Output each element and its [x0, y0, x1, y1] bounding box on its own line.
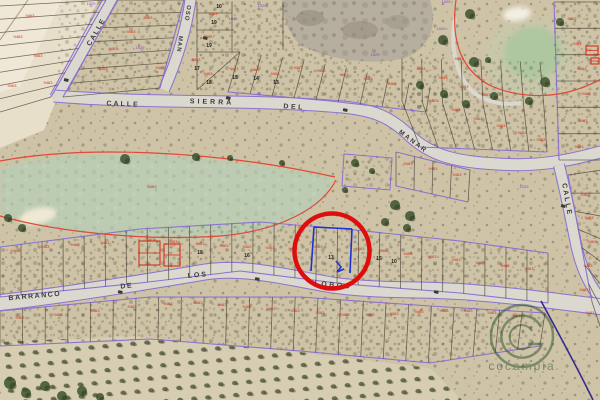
tree-shadow — [355, 163, 360, 168]
tree-shadow — [45, 386, 51, 392]
tree-shadow — [22, 228, 27, 233]
parcel-code-purple: 1029 — [520, 184, 530, 189]
parcel-code-red: 9463 — [464, 308, 474, 313]
parcel-code-red: 9463 — [192, 57, 202, 62]
parcel-code-red: 9463 — [26, 13, 36, 18]
parcel-code-red: 9463 — [453, 172, 463, 177]
parcel-code-purple: 1029 — [87, 1, 97, 6]
parcel-code-red: 9463 — [575, 144, 585, 149]
parcel-code-red: 9463 — [169, 239, 179, 244]
watermark-text: cocampia — [488, 359, 555, 373]
parcel-code-red: 9463 — [204, 34, 214, 39]
parcel-code-red: 9463 — [388, 81, 398, 86]
parcel-code-red: 9463 — [404, 251, 414, 256]
tree-shadow — [230, 158, 234, 162]
tree-shadow — [488, 60, 492, 64]
tree-shadow — [420, 85, 425, 90]
parcel-number: 13 — [273, 80, 279, 86]
cadastral-aerial-map: 9463946394639463946394639463946394639463… — [0, 0, 600, 400]
parcel-code-red: 9463 — [417, 66, 427, 71]
parcel-code-red: 9463 — [488, 310, 498, 315]
parcel-number: 19 — [211, 20, 217, 26]
parcel-code-red: 9463 — [266, 245, 276, 250]
parcel-code-red: 9463 — [501, 263, 511, 268]
parcel-code-red: 9463 — [99, 66, 109, 71]
tree-shadow — [529, 101, 534, 106]
parcel-code-red: 9463 — [579, 118, 589, 123]
parcel-code-purple: 1029 — [371, 52, 381, 57]
parcel-code-red: 9463 — [209, 11, 219, 16]
parcel-code-red: 9463 — [578, 66, 588, 71]
parcel-code-red: 9463 — [54, 312, 64, 317]
tree-shadow — [474, 62, 480, 68]
parcel-code-red: 9463 — [220, 243, 230, 248]
tree-shadow — [466, 104, 471, 109]
tree-shadow — [372, 171, 376, 175]
parcel-code-red: 9463 — [196, 241, 206, 246]
parcel-code-purple: 1029 — [136, 45, 146, 50]
parcel-code-red: 9463 — [291, 308, 301, 313]
parcel-code-red: 9463 — [271, 71, 281, 76]
parcel-code-red: 9463 — [41, 244, 51, 249]
parcel-code-red: 9463 — [91, 308, 101, 313]
parcel-code-red: 9463 — [428, 254, 438, 259]
tree-shadow — [8, 218, 13, 223]
parcel-code-red: 9463 — [340, 72, 350, 77]
parcel-code-red: 9463 — [585, 215, 595, 220]
fenced-parcel — [342, 154, 392, 190]
parcel-code-red: 9463 — [429, 98, 439, 103]
map-canvas[interactable]: 9463946394639463946394639463946394639463… — [0, 0, 600, 400]
parcel-code-red: 9463 — [194, 300, 204, 305]
parcel-code-red: 9463 — [156, 65, 166, 70]
parcel-number: 16 — [244, 253, 250, 259]
parcel-code-red: 9463 — [243, 244, 253, 249]
tree-shadow — [410, 216, 416, 222]
parcel-code-red: 9463 — [218, 302, 228, 307]
parcel-line — [414, 157, 415, 191]
tree-shadow — [560, 22, 565, 27]
parcel-code-red: 9463 — [251, 67, 261, 72]
parcel-code-red: 9463 — [34, 53, 44, 58]
parcel-code-red: 9463 — [366, 312, 376, 317]
tree-shadow — [395, 205, 401, 211]
parcel-code-red: 9463 — [230, 66, 240, 71]
parcel-code-red: 9463 — [109, 46, 119, 51]
parcel-code-red: 9463 — [476, 260, 486, 265]
tree-shadow — [196, 157, 201, 162]
tree-shadow — [82, 391, 88, 397]
parcel-number: 18 — [206, 80, 212, 86]
parcel-code-red: 9463 — [267, 306, 277, 311]
parcel-code-red: 9463 — [243, 304, 253, 309]
parcel-code-red: 9463 — [127, 29, 137, 34]
parcel-code-red: 9463 — [482, 92, 492, 97]
parcel-code-red: 9463 — [204, 71, 214, 76]
parcel-code-red: 9463 — [404, 161, 414, 166]
tree-shadow — [443, 40, 449, 46]
parcel-code-purple: 1029 — [442, 0, 452, 4]
tree-shadow — [470, 14, 476, 20]
parcel-code-red: 9463 — [14, 34, 24, 39]
parcel-number: 19 — [206, 43, 212, 49]
parcel-code-red: 9463 — [580, 287, 590, 292]
parcel-code-red: 9463 — [415, 309, 425, 314]
street-label: CALLE — [106, 100, 140, 108]
parcel-number: 15 — [376, 256, 382, 262]
tree-shadow — [125, 159, 131, 165]
parcel-code-red: 9463 — [164, 301, 174, 306]
parcel-code-red: 9463 — [316, 310, 326, 315]
parcel-code-red: 9463 — [537, 137, 547, 142]
parcel-code-red: 9463 — [71, 242, 81, 247]
parcel-code-red: 9463 — [146, 237, 156, 242]
parcel-code-red: 9463 — [452, 107, 462, 112]
tree-shadow — [385, 222, 390, 227]
parcel-code-red: 9463 — [379, 248, 389, 253]
parcel-number: 10 — [391, 259, 397, 265]
parcel-number: 18 — [197, 250, 203, 256]
tree-shadow — [444, 94, 449, 99]
parcel-code-red: 9463 — [148, 184, 158, 189]
parcel-code-red: 9463 — [584, 263, 594, 268]
parcel-code-red: 9463 — [390, 311, 400, 316]
parcel-code-red: 9463 — [356, 246, 366, 251]
parcel-code-red: 9463 — [144, 15, 154, 20]
tree-shadow — [9, 382, 16, 389]
parcel-code-red: 9463 — [573, 41, 583, 46]
parcel-code-red: 9463 — [581, 192, 591, 197]
parcel-number: 10 — [216, 4, 222, 10]
parcel-code-purple: 1029 — [437, 26, 447, 31]
parcel-code-red: 9463 — [455, 56, 465, 61]
parcel-code-red: 9463 — [452, 257, 462, 262]
parcel-code-purple: 1029 — [258, 3, 268, 8]
parcel-code-red: 9463 — [16, 315, 26, 320]
tree-shadow — [407, 228, 412, 233]
parcel-code-red: 9463 — [518, 130, 528, 135]
parcel-code-red: 9463 — [586, 310, 596, 315]
parcel-code-red: 9463 — [101, 240, 111, 245]
parcel-code-red: 9463 — [525, 266, 535, 271]
tree-shadow — [494, 96, 499, 101]
tree-shadow — [545, 82, 551, 88]
parcel-code-red: 9463 — [440, 308, 450, 313]
parcel-code-red: 9463 — [341, 312, 351, 317]
parcel-code-red: 9463 — [429, 166, 439, 171]
tree-shadow — [26, 393, 32, 399]
tree-shadow — [345, 190, 349, 194]
parcel-number: 17 — [194, 66, 200, 72]
street-label: DE — [120, 282, 133, 290]
parcel-code-red: 9463 — [474, 116, 484, 121]
parcel-code-red: 9463 — [568, 16, 578, 21]
parcel-code-red: 9463 — [128, 304, 138, 309]
street-label: DEL — [283, 103, 305, 111]
parcel-code-red: 9463 — [314, 244, 324, 249]
parcel-code-red: 9463 — [497, 123, 507, 128]
parcel-code-red: 9463 — [460, 84, 470, 89]
parcel-code-red: 9463 — [364, 76, 374, 81]
parcel-code-red: 9463 — [439, 75, 449, 80]
parcel-number: 14 — [253, 76, 259, 82]
parcel-code-red: 9463 — [294, 65, 304, 70]
parcel-number: 15 — [232, 75, 238, 81]
parcel-code-red: 9463 — [44, 80, 54, 85]
parcel-code-purple: 1029 — [229, 16, 239, 21]
tree-shadow — [282, 163, 286, 167]
parcel-code-red: 9463 — [317, 68, 327, 73]
parcel-number: 13 — [328, 255, 334, 261]
parcel-line — [337, 228, 338, 283]
parcel-code-red: 9463 — [588, 239, 598, 244]
parcel-code-red: 9463 — [11, 248, 21, 253]
parcel-code-red: 9463 — [8, 83, 18, 88]
parcel-code-red: 9463 — [582, 91, 592, 96]
